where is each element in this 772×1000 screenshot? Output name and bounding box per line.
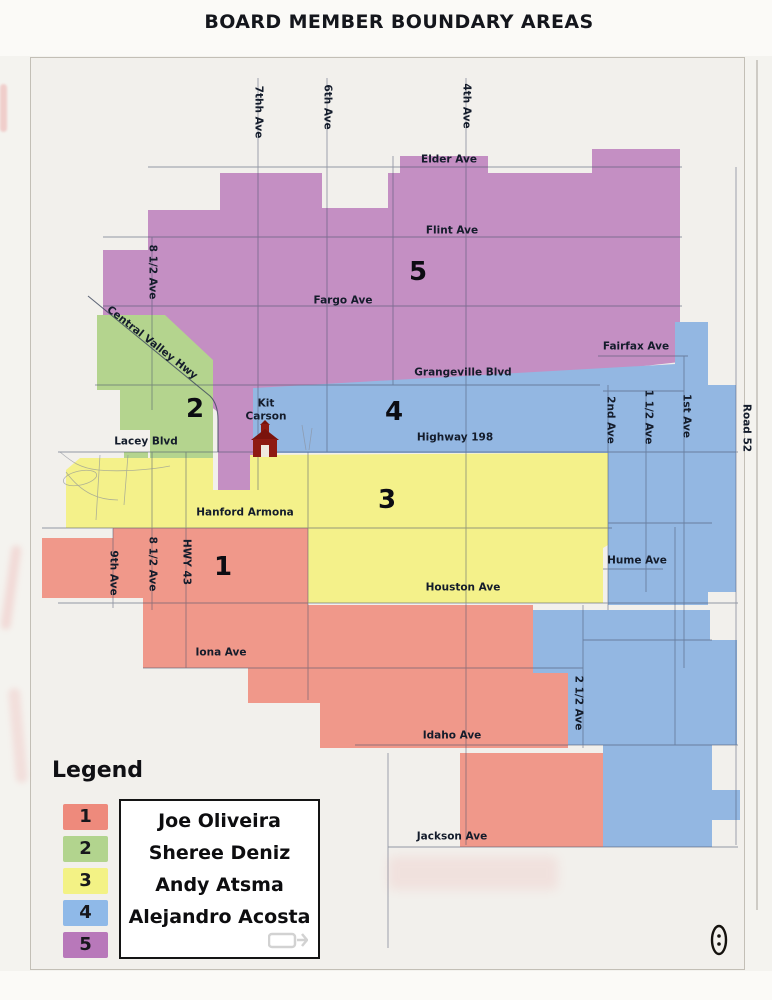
- street-label-fairfax-ave: Fairfax Ave: [603, 341, 669, 354]
- legend-name-3: Andy Atsma: [121, 870, 318, 902]
- legend-swatches: 1 2 3 4 5: [63, 804, 108, 964]
- region-number-label-4: 4: [385, 397, 403, 427]
- bleedthrough-artifact: [8, 688, 28, 784]
- street-label-jackson-ave: Jackson Ave: [417, 831, 488, 844]
- street-label-2nd-ave: 2nd Ave: [604, 396, 617, 444]
- bleedthrough-artifact: [0, 545, 22, 631]
- legend-name-1: Joe Oliveira: [121, 806, 318, 838]
- street-label-lacey-blvd: Lacey Blvd: [114, 436, 178, 449]
- legend-swatch-5: 5: [63, 932, 108, 958]
- street-label-grangeville-blvd: Grangeville Blvd: [414, 367, 511, 380]
- street-label-2-1-2-ave: 2 1/2 Ave: [572, 676, 585, 731]
- legend-name-4: Alejandro Acosta: [121, 902, 318, 934]
- street-label-houston-ave: Houston Ave: [426, 582, 501, 595]
- street-label-8-1-2-ave: 8 1/2 Ave: [146, 537, 159, 592]
- street-label-fargo-ave: Fargo Ave: [314, 295, 373, 308]
- legend-swatch-2: 2: [63, 836, 108, 862]
- street-label-hume-ave: Hume Ave: [607, 555, 667, 568]
- scan-edge-line: [756, 60, 758, 910]
- street-label-1st-ave: 1st Ave: [680, 394, 693, 438]
- street-label-hanford-armona: Hanford Armona: [196, 507, 294, 520]
- legend-title: Legend: [52, 758, 143, 783]
- scan-artifact-icon: [268, 931, 308, 953]
- legend-name-box: Joe Oliveira Sheree Deniz Andy Atsma Ale…: [119, 799, 320, 959]
- street-label-highway-198: Highway 198: [417, 432, 493, 445]
- bleedthrough-artifact: [388, 856, 558, 890]
- street-label-4th-ave: 4th Ave: [460, 83, 473, 128]
- street-label-9th-ave: 9th Ave: [107, 550, 120, 595]
- street-label-idaho-ave: Idaho Ave: [423, 730, 482, 743]
- bleedthrough-artifact: [0, 84, 7, 132]
- legend-swatch-1: 1: [63, 804, 108, 830]
- page-title: BOARD MEMBER BOUNDARY AREAS: [26, 11, 772, 33]
- street-label-elder-ave: Elder Ave: [421, 154, 477, 167]
- street-label-kit-carson: Kit Carson: [239, 397, 293, 422]
- street-label-8-1-2-ave: 8 1/2 Ave: [146, 245, 159, 300]
- bottom-band: [0, 971, 772, 1000]
- legend-name-2: Sheree Deniz: [121, 838, 318, 870]
- street-label-flint-ave: Flint Ave: [426, 225, 478, 238]
- legend-swatch-4: 4: [63, 900, 108, 926]
- region-number-label-5: 5: [409, 257, 427, 287]
- street-label-6th-ave: 6th Ave: [321, 84, 334, 129]
- region-number-label-1: 1: [214, 552, 232, 582]
- region-number-label-2: 2: [186, 394, 204, 424]
- region-number-label-3: 3: [378, 485, 396, 515]
- street-label-7thh-ave: 7thh Ave: [252, 86, 265, 139]
- street-label-1-1-2-ave: 1 1/2 Ave: [642, 390, 655, 445]
- street-label-road-52: Road 52: [740, 404, 753, 452]
- legend-swatch-3: 3: [63, 868, 108, 894]
- street-label-hwy-43: HWY 43: [180, 539, 193, 585]
- street-label-iona-ave: Iona Ave: [195, 647, 246, 660]
